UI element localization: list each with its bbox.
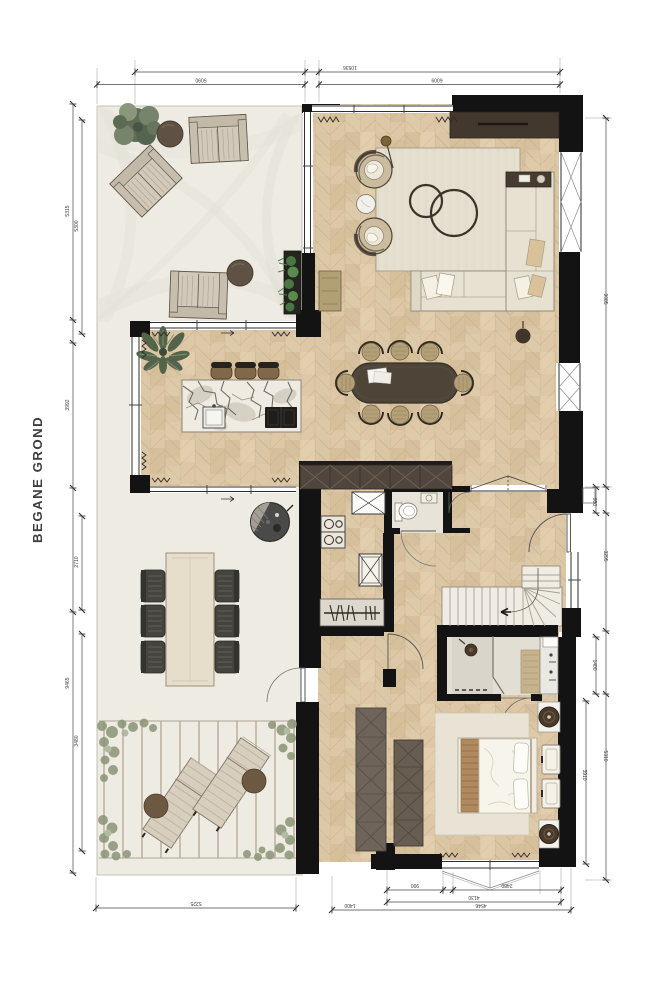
svg-text:3480: 3480: [74, 735, 80, 746]
svg-text:4130: 4130: [468, 894, 479, 900]
svg-text:4546: 4546: [475, 902, 486, 908]
svg-text:BEGANE GROND: BEGANE GROND: [30, 416, 45, 543]
svg-text:1400: 1400: [344, 902, 355, 908]
svg-text:5225: 5225: [190, 900, 201, 906]
svg-text:3295: 3295: [602, 550, 608, 561]
svg-text:9465: 9465: [65, 677, 71, 688]
svg-text:900: 900: [411, 882, 420, 888]
svg-text:2710: 2710: [74, 556, 80, 567]
svg-text:5300: 5300: [74, 220, 80, 231]
svg-text:5090: 5090: [195, 77, 206, 83]
svg-text:6009: 6009: [431, 77, 442, 83]
svg-text:5315: 5315: [65, 205, 71, 216]
svg-text:1400: 1400: [591, 659, 597, 670]
svg-text:5310: 5310: [602, 750, 608, 761]
svg-text:930: 930: [591, 498, 597, 507]
svg-text:9085: 9085: [602, 293, 608, 304]
svg-text:10536: 10536: [343, 64, 357, 70]
svg-text:3992: 3992: [65, 399, 71, 410]
svg-text:2480: 2480: [501, 882, 512, 888]
svg-text:3910: 3910: [581, 769, 587, 780]
